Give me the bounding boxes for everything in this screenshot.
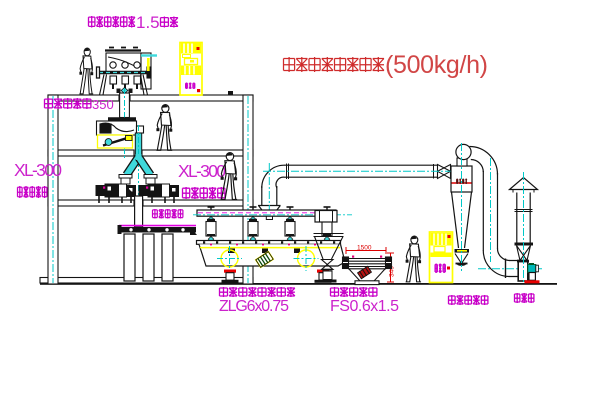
svg-text:350: 350 xyxy=(92,97,114,112)
svg-text:1500: 1500 xyxy=(357,245,372,252)
svg-text:1.5: 1.5 xyxy=(136,13,160,32)
svg-text:FS0.6x1.5: FS0.6x1.5 xyxy=(330,298,399,315)
svg-text:XL-300: XL-300 xyxy=(178,161,226,181)
svg-text:ZLG6x0.75: ZLG6x0.75 xyxy=(219,298,289,315)
svg-text:(500kg/h): (500kg/h) xyxy=(385,51,488,79)
svg-text:XL-300: XL-300 xyxy=(14,160,62,180)
